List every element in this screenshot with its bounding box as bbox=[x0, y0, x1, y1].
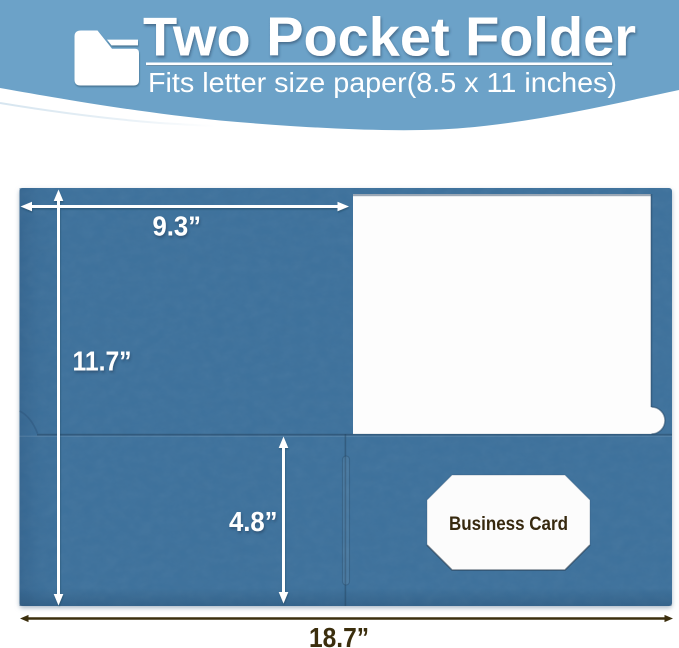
svg-text:Fits letter size paper(8.5 x 1: Fits letter size paper(8.5 x 11 inches) bbox=[148, 67, 617, 98]
svg-text:Business Card: Business Card bbox=[449, 514, 568, 535]
svg-text:4.8”: 4.8” bbox=[229, 506, 278, 537]
svg-text:Two Pocket Folder: Two Pocket Folder bbox=[143, 6, 636, 68]
svg-text:9.3”: 9.3” bbox=[153, 211, 202, 242]
svg-text:18.7”: 18.7” bbox=[309, 622, 369, 648]
svg-text:11.7”: 11.7” bbox=[73, 346, 132, 377]
